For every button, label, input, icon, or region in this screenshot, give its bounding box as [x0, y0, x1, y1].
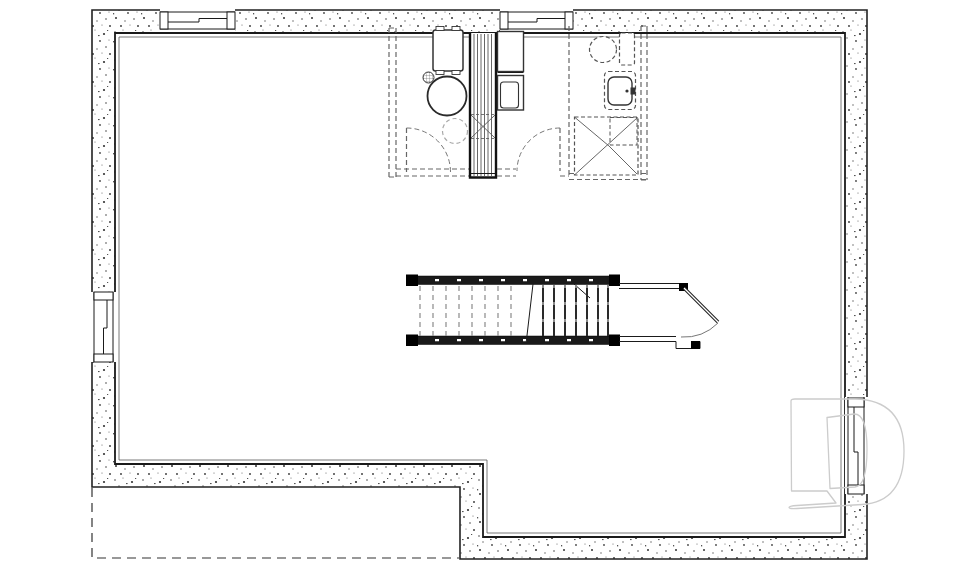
window-jamb [160, 12, 168, 29]
toilet-tank [620, 33, 635, 65]
door-jamb-post [691, 341, 700, 349]
window-jamb [227, 12, 235, 29]
appliance-box [433, 30, 463, 71]
floor-plan-page [0, 0, 960, 569]
window-top-left [160, 9, 235, 32]
stair-wall-post [609, 335, 620, 347]
appliance-foot [436, 27, 444, 31]
mechanical-units [498, 32, 524, 111]
toilet-bowl [590, 37, 617, 63]
mechanical-chase [470, 33, 496, 178]
drain-dot-icon [625, 89, 628, 92]
window-jamb [94, 292, 113, 300]
stair-wall-post [406, 335, 418, 347]
faucet-icon [631, 88, 636, 95]
equipment-box-upper [498, 32, 524, 72]
water-heater [428, 77, 467, 116]
floor-drain-icon [423, 72, 434, 83]
window-top-center [500, 9, 573, 32]
appliance-foot [452, 27, 460, 31]
window-right [845, 397, 868, 494]
stair-wall-post [609, 275, 620, 287]
window-jamb [500, 12, 508, 29]
appliance-foot [436, 71, 444, 75]
appliance-foot [452, 71, 460, 75]
equipment-inner-unit [501, 82, 519, 108]
window-left [91, 292, 117, 362]
window-jamb [94, 354, 113, 362]
floor-plan-drawing [0, 0, 960, 569]
stair-wall-post [406, 275, 418, 287]
